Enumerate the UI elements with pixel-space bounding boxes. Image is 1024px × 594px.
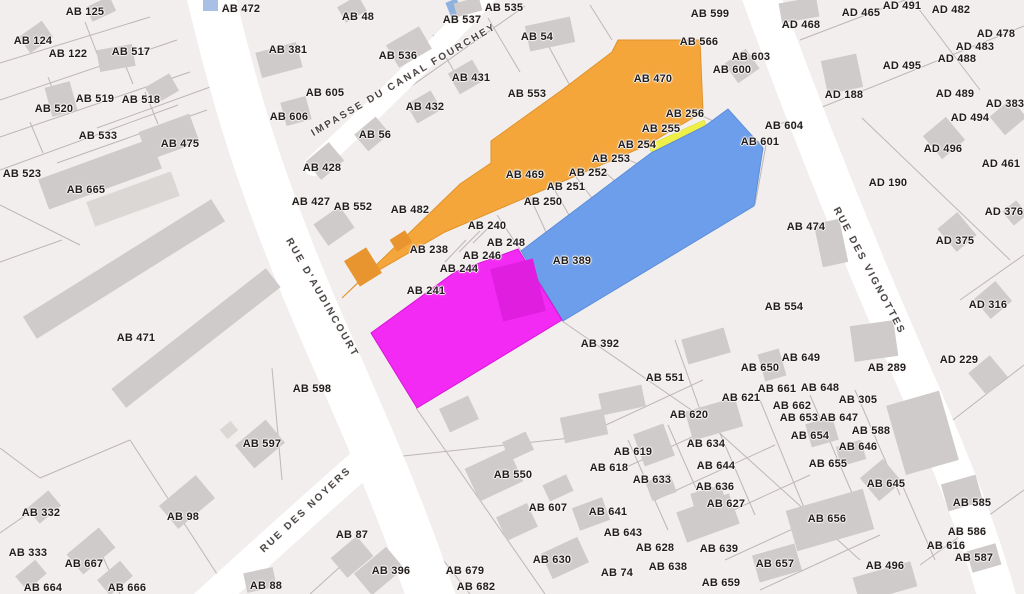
building: [23, 199, 225, 339]
building: [850, 320, 899, 362]
building: [937, 212, 976, 252]
building: [572, 497, 610, 530]
building: [968, 355, 1007, 394]
building: [111, 268, 280, 408]
building: [313, 206, 354, 246]
building: [496, 503, 538, 541]
building: [598, 385, 646, 416]
building: [97, 561, 133, 594]
building-in-orange: [344, 247, 382, 286]
building: [280, 96, 311, 126]
building: [758, 349, 787, 382]
building: [220, 421, 238, 439]
building: [990, 99, 1024, 135]
building: [406, 90, 441, 123]
building: [337, 0, 367, 23]
road-rue-des-noyers: [192, 458, 368, 594]
building: [96, 44, 135, 72]
building: [786, 489, 874, 551]
canal-water: [203, 0, 463, 19]
building: [1002, 200, 1024, 225]
building: [439, 395, 479, 432]
building: [541, 537, 589, 579]
map-canvas: [0, 0, 1024, 594]
building: [633, 424, 675, 467]
building: [923, 117, 965, 159]
building: [560, 409, 608, 444]
water-patch: [203, 0, 218, 11]
building: [860, 459, 902, 501]
building: [542, 474, 573, 501]
building: [853, 561, 918, 594]
building: [27, 490, 61, 523]
building: [836, 440, 867, 466]
building: [45, 81, 78, 117]
building: [886, 391, 959, 475]
building: [645, 473, 676, 501]
building: [448, 60, 484, 95]
building: [159, 475, 215, 529]
building: [724, 49, 759, 84]
building: [752, 543, 802, 582]
building: [685, 397, 743, 440]
building: [525, 17, 575, 52]
building: [15, 560, 46, 591]
building: [779, 0, 820, 23]
building: [821, 54, 863, 95]
building: [86, 0, 116, 22]
building: [681, 327, 730, 364]
building: [255, 42, 302, 78]
cadastral-map: AB 125AB 124AB 122AB 517AB 519AB 518AB 5…: [0, 0, 1024, 594]
building: [805, 417, 839, 448]
